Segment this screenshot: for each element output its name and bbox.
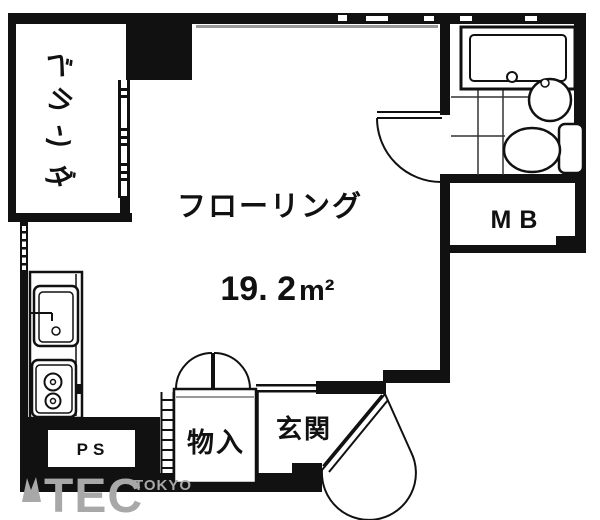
meter-box-label: MB <box>491 206 546 234</box>
entrance-label: 玄関 <box>276 414 332 444</box>
area-unit: m² <box>299 275 335 307</box>
area-value: 19. 2 <box>220 270 296 308</box>
watermark-name: TEC <box>44 470 143 520</box>
watermark-sub: TOKYO <box>134 477 192 494</box>
stove-icon <box>32 360 83 417</box>
wall-pillar <box>126 24 192 80</box>
pipe-shaft-label: PS <box>77 440 110 459</box>
left-wall-window <box>20 226 28 270</box>
floor-plan-canvas: フローリング 19. 2 m² ベ ラ ン ダ 物入 玄関 MB PS TEC … <box>0 0 600 520</box>
veranda-window <box>118 80 130 198</box>
window-glazing-line <box>196 25 438 28</box>
washbasin-icon <box>529 79 571 121</box>
storage-label: 物入 <box>187 428 245 458</box>
toilet-icon <box>504 124 583 173</box>
kitchen-sink-icon <box>31 286 78 346</box>
main-room-label: フローリング <box>177 190 363 223</box>
floor-plan: フローリング 19. 2 m² ベ ラ ン ダ 物入 玄関 MB PS TEC … <box>0 0 600 520</box>
